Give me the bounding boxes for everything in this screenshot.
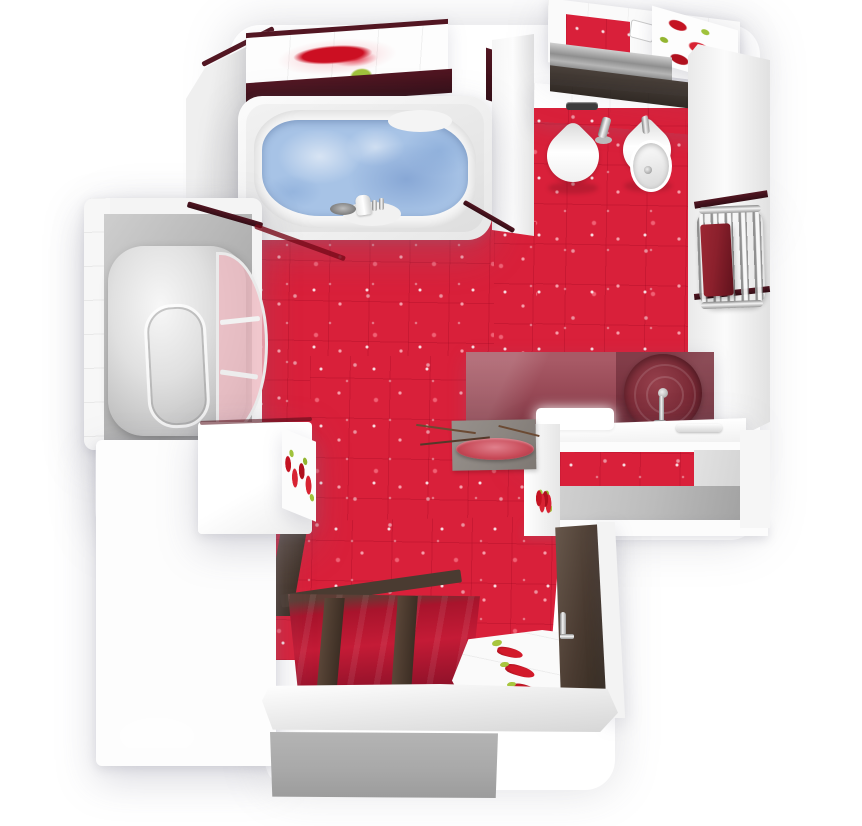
bidet-drain <box>644 166 652 174</box>
bathtub-tap-2 <box>379 198 384 210</box>
bathtub-tap-1 <box>372 200 377 211</box>
left-counter-pepper-face <box>282 428 316 522</box>
bidet-basin <box>630 140 672 192</box>
toilet-shadow <box>548 182 598 194</box>
bathtub-headrest-notch <box>388 110 452 132</box>
entry-step <box>270 732 498 798</box>
vanity-towel-rail <box>676 424 722 432</box>
bathroom-floor-plan <box>0 0 862 826</box>
bathtub-spout <box>355 194 373 216</box>
floor-connector <box>494 222 536 364</box>
hall-baseboard <box>262 684 618 732</box>
vanity-right-edge <box>740 430 770 528</box>
radiator-towel <box>700 223 734 296</box>
decor-plate <box>456 438 534 460</box>
flush-plate <box>566 102 598 110</box>
vanity-leg-pepper-decal <box>536 484 552 518</box>
bathtub-drain <box>330 203 356 215</box>
door-handle-foot <box>560 634 574 639</box>
partition-wall <box>492 34 534 236</box>
shower-cabin-hatch <box>143 302 211 429</box>
door-handle <box>560 612 566 636</box>
